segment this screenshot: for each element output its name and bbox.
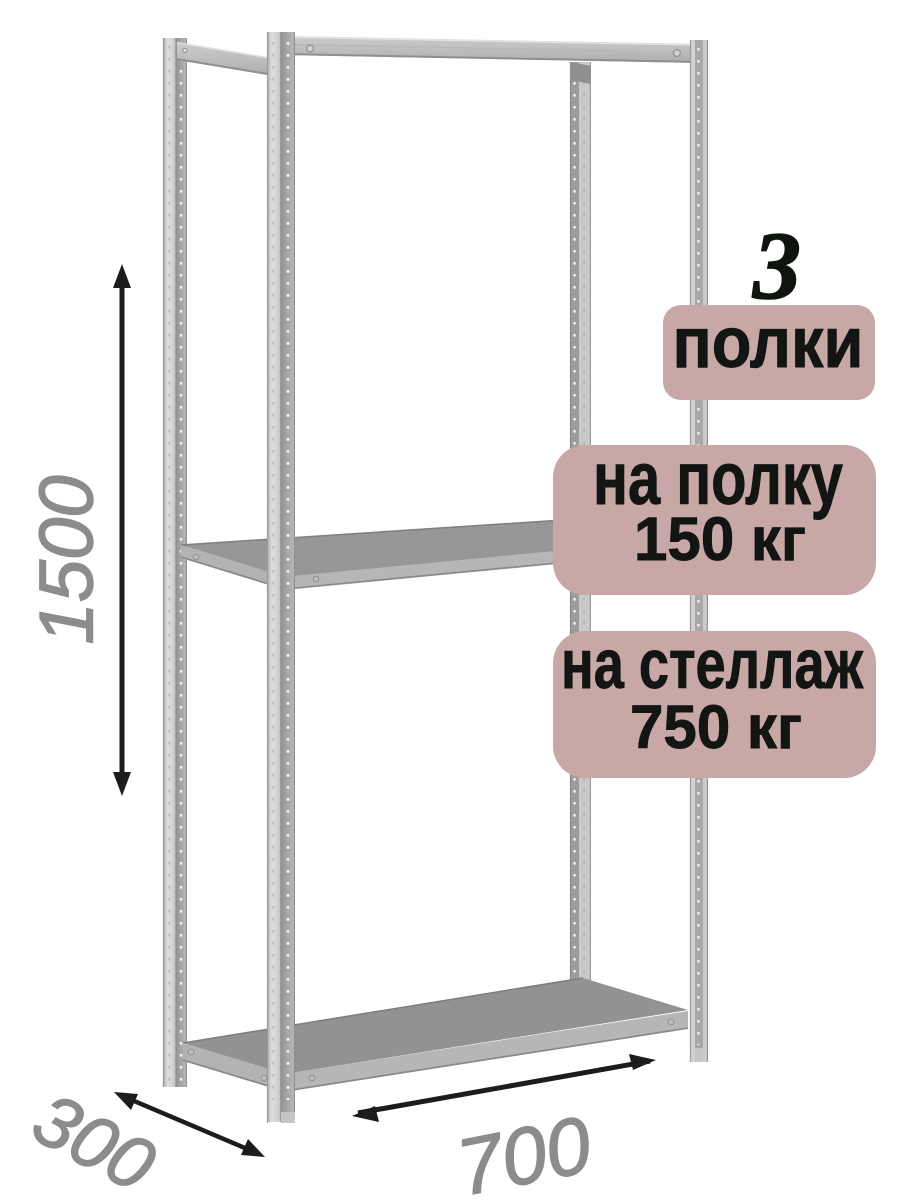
svg-text:на стеллаж: на стеллаж bbox=[561, 625, 864, 703]
svg-text:750 кг: 750 кг bbox=[630, 693, 802, 761]
svg-text:700: 700 bbox=[450, 1100, 598, 1200]
svg-text:полки: полки bbox=[673, 304, 864, 383]
svg-text:3: 3 bbox=[752, 212, 801, 319]
svg-text:300: 300 bbox=[20, 1076, 168, 1200]
svg-text:150 кг: 150 кг bbox=[634, 505, 806, 573]
svg-text:1500: 1500 bbox=[25, 475, 110, 644]
